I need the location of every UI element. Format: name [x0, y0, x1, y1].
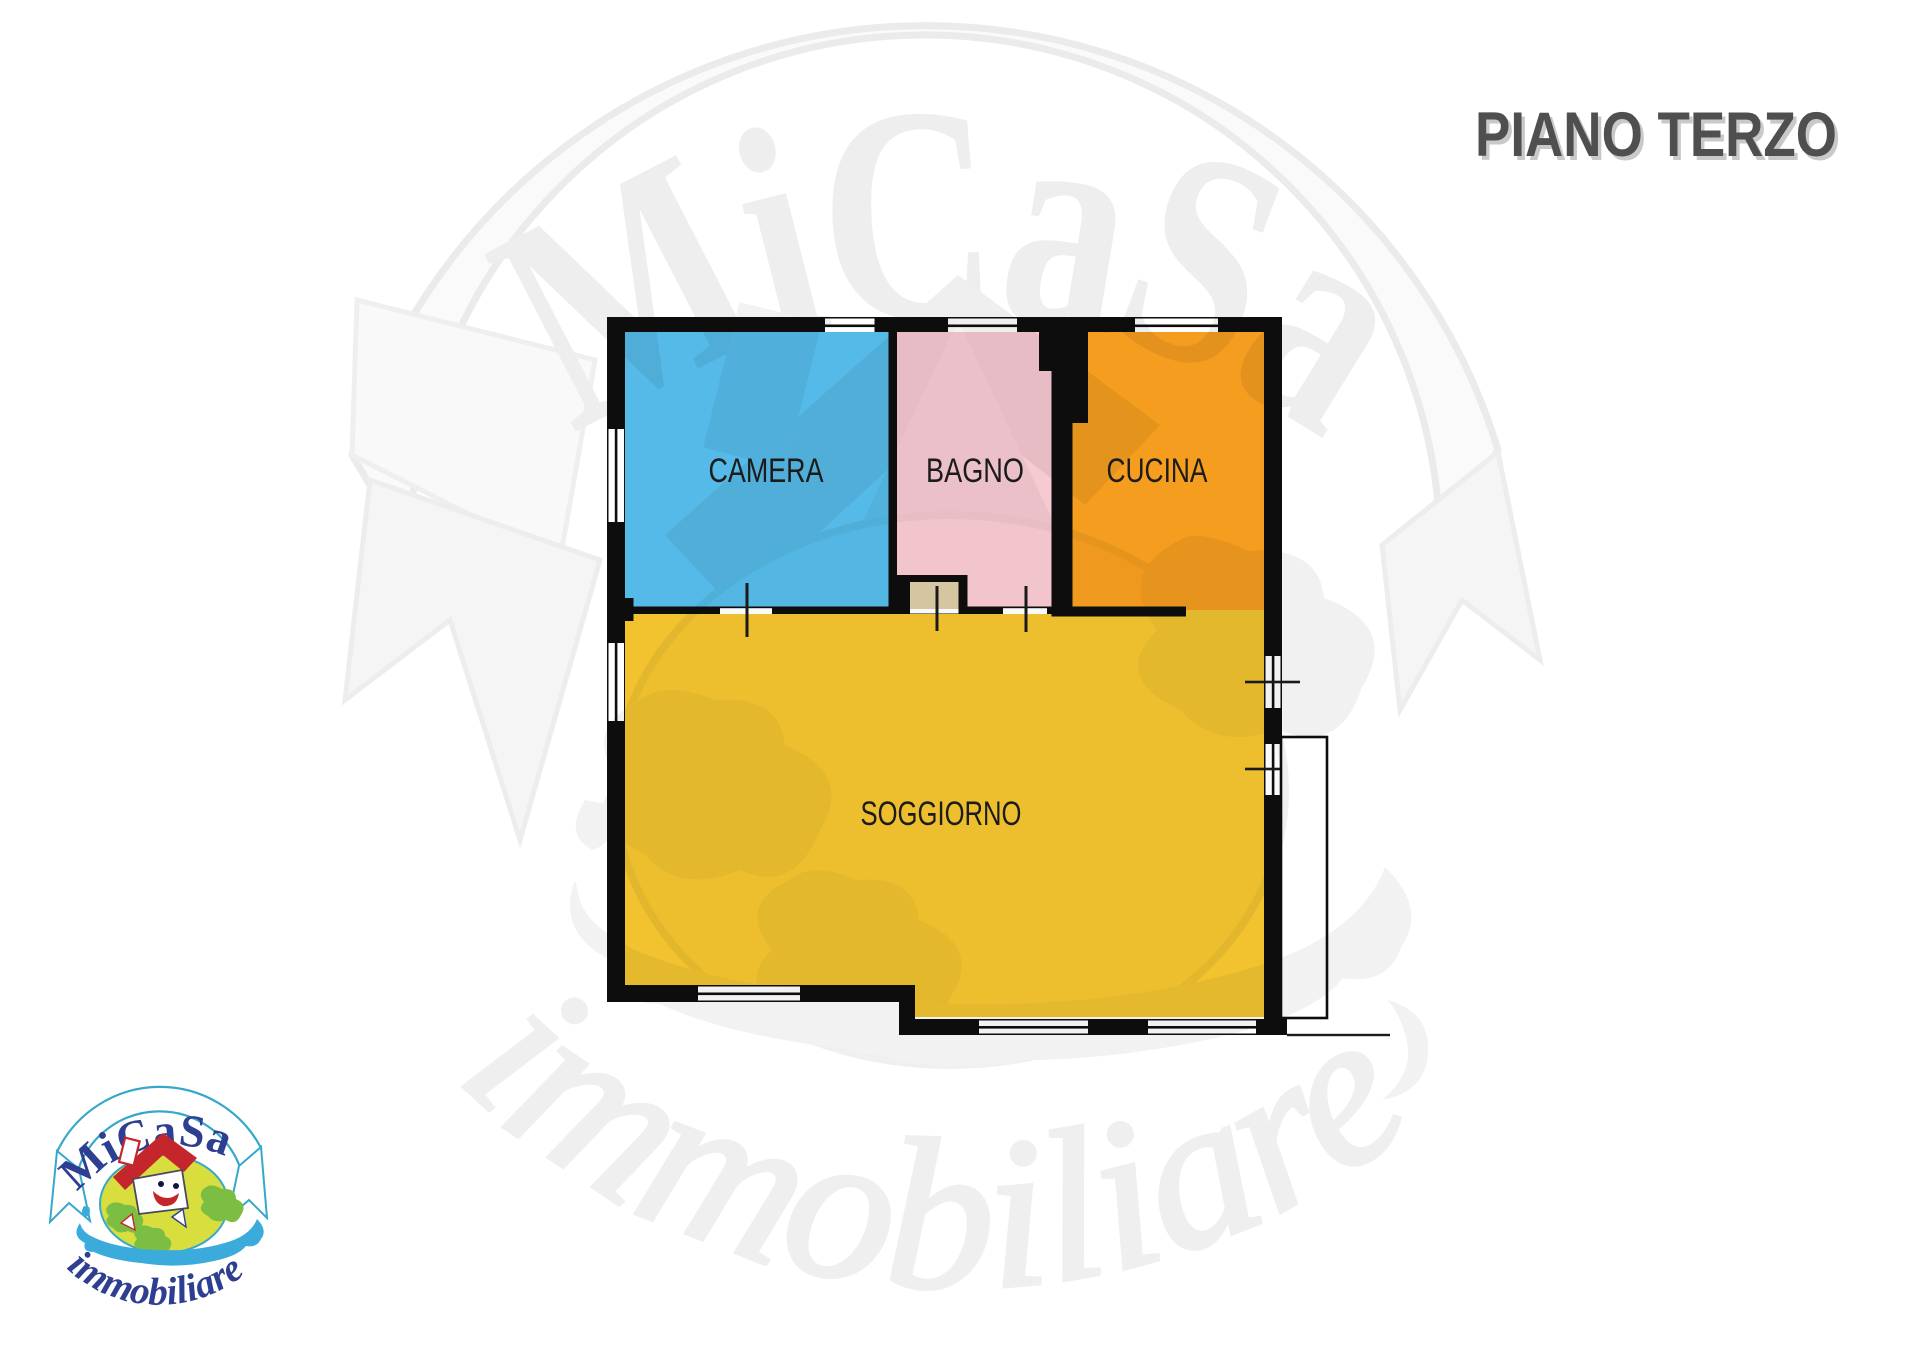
svg-text:PIANO TERZO: PIANO TERZO: [1475, 100, 1837, 170]
